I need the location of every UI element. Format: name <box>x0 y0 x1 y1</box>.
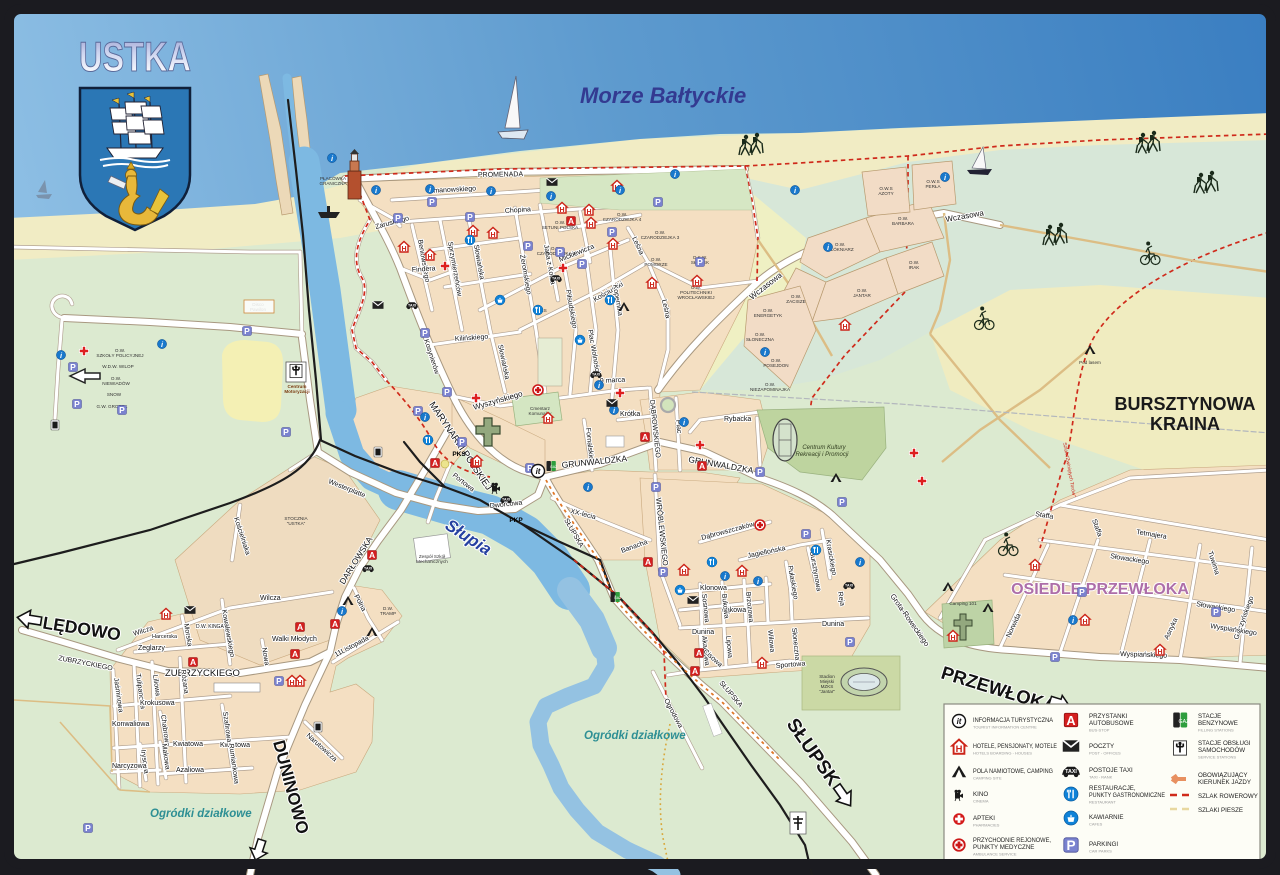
svg-text:ZACISZE: ZACISZE <box>786 299 805 304</box>
svg-text:Wilcza: Wilcza <box>260 595 281 602</box>
svg-text:POST - OFFICES: POST - OFFICES <box>1089 751 1121 756</box>
svg-text:NIEWIADÓW: NIEWIADÓW <box>102 380 130 386</box>
svg-text:WROCŁAWSKIEJ: WROCŁAWSKIEJ <box>677 295 714 300</box>
svg-text:PUNKTY GASTRONOMICZNE: PUNKTY GASTRONOMICZNE <box>1089 792 1165 799</box>
svg-text:Klonowa: Klonowa <box>700 585 727 592</box>
svg-text:POSTOJE TAXI: POSTOJE TAXI <box>1089 767 1133 774</box>
svg-text:KAWIARNIE: KAWIARNIE <box>1089 814 1124 821</box>
svg-text:CAR PARKS: CAR PARKS <box>1089 849 1112 854</box>
svg-text:SZKOŁY POLICYJNEJ: SZKOŁY POLICYJNEJ <box>96 353 143 358</box>
svg-text:"Jantar": "Jantar" <box>819 689 835 694</box>
svg-text:AMBULANCE SERVICE: AMBULANCE SERVICE <box>973 852 1017 857</box>
svg-text:RESTAURANT: RESTAURANT <box>1089 800 1116 805</box>
svg-text:RESTAURACJE,: RESTAURACJE, <box>1089 785 1136 792</box>
svg-text:Żeglarzy: Żeglarzy <box>138 643 165 652</box>
svg-text:OBOWIĄZUJĄCY: OBOWIĄZUJĄCY <box>1198 772 1248 779</box>
svg-text:PKP: PKP <box>509 517 523 524</box>
svg-text:D.W. KINGA: D.W. KINGA <box>196 624 224 630</box>
svg-text:Dunina: Dunina <box>822 621 844 628</box>
svg-text:PKS: PKS <box>452 451 466 458</box>
svg-text:Motoryzacji: Motoryzacji <box>284 389 309 394</box>
svg-text:OSIEDLE PRZEWŁOKA: OSIEDLE PRZEWŁOKA <box>1011 581 1189 598</box>
svg-text:SERVICE STATIONS: SERVICE STATIONS <box>1198 755 1236 760</box>
svg-text:Mechanicznych: Mechanicznych <box>416 559 448 564</box>
svg-text:USTKA: USTKA <box>79 33 191 80</box>
svg-text:STACJE: STACJE <box>1198 713 1221 720</box>
svg-text:ENERGETYK: ENERGETYK <box>754 313 783 318</box>
svg-text:TOURIST INFORMATION CENTRE: TOURIST INFORMATION CENTRE <box>973 725 1037 730</box>
svg-text:KIERUNEK JAZDY: KIERUNEK JAZDY <box>1198 779 1251 786</box>
svg-text:JANTAR: JANTAR <box>853 293 871 298</box>
svg-text:Krótka: Krótka <box>620 411 640 418</box>
svg-text:SZLAKI PIESZE: SZLAKI PIESZE <box>1198 807 1243 814</box>
svg-text:INFORMACJA TURYSTYCZNA: INFORMACJA TURYSTYCZNA <box>973 717 1054 724</box>
svg-text:Walki Młodych: Walki Młodych <box>272 636 317 643</box>
svg-text:Pod lasem: Pod lasem <box>1079 360 1101 365</box>
svg-text:BENZYNOWE: BENZYNOWE <box>1198 720 1238 727</box>
svg-text:SŁONECZNA: SŁONECZNA <box>746 337 775 342</box>
svg-text:Rybacka: Rybacka <box>724 416 751 423</box>
svg-text:PARKINGI: PARKINGI <box>1089 841 1118 848</box>
svg-text:Rekreacji i Promocji: Rekreacji i Promocji <box>795 452 849 458</box>
svg-text:Centrum Kultury: Centrum Kultury <box>802 445 846 451</box>
svg-text:POMORZE: POMORZE <box>644 262 667 267</box>
svg-text:Azaliowa: Azaliowa <box>176 767 204 774</box>
svg-text:ZUBRZYCKIEGO: ZUBRZYCKIEGO <box>165 668 240 679</box>
svg-text:Konwaliowa: Konwaliowa <box>112 721 149 728</box>
svg-text:SNOW: SNOW <box>107 392 122 397</box>
svg-text:CAFES: CAFES <box>1089 822 1103 827</box>
svg-text:Camping 101: Camping 101 <box>949 601 977 606</box>
svg-text:Kwiatowa: Kwiatowa <box>173 741 203 748</box>
svg-text:PUNKTY MEDYCZNE: PUNKTY MEDYCZNE <box>973 844 1034 851</box>
svg-text:BURSZTYNOWA: BURSZTYNOWA <box>1115 394 1256 414</box>
svg-text:AZOTY: AZOTY <box>878 191 893 196</box>
svg-text:POCZTY: POCZTY <box>1089 743 1114 750</box>
svg-text:HOTELE, PENSJONATY, MOTELE: HOTELE, PENSJONATY, MOTELE <box>973 743 1057 750</box>
svg-text:SAMOCHODÓW: SAMOCHODÓW <box>1198 747 1245 754</box>
svg-text:Harcerska: Harcerska <box>152 634 178 640</box>
svg-text:FILLING STATIONS: FILLING STATIONS <box>1198 728 1234 733</box>
svg-text:PRZYCHODNIE REJONOWE,: PRZYCHODNIE REJONOWE, <box>973 837 1051 844</box>
svg-text:IRAK: IRAK <box>909 265 921 270</box>
svg-text:HOTELS BOARDING - HOUSES: HOTELS BOARDING - HOUSES <box>973 751 1032 756</box>
svg-text:PERŁA: PERŁA <box>925 184 941 189</box>
svg-text:CZARODZIEJKA 4: CZARODZIEJKA 4 <box>603 217 642 222</box>
svg-text:CINEMA: CINEMA <box>973 799 989 804</box>
svg-text:POLA NAMIOTOWE, CAMPING: POLA NAMIOTOWE, CAMPING <box>973 768 1053 775</box>
svg-text:PROMENADA: PROMENADA <box>478 171 524 179</box>
svg-text:SZLAK ROWEROWY: SZLAK ROWEROWY <box>1198 793 1258 800</box>
svg-text:Ogródki działkowe: Ogródki działkowe <box>150 808 252 820</box>
svg-text:CAMPING SITE: CAMPING SITE <box>973 776 1002 781</box>
svg-text:BARBARA: BARBARA <box>892 221 915 226</box>
svg-text:GRANICZNA: GRANICZNA <box>319 181 347 186</box>
svg-text:Narcyzowa: Narcyzowa <box>112 763 147 770</box>
svg-text:PRZYSTANKI: PRZYSTANKI <box>1089 713 1128 720</box>
svg-text:POSEJDON: POSEJDON <box>763 363 788 368</box>
svg-text:APTEKI: APTEKI <box>973 815 995 822</box>
svg-text:TRAMP: TRAMP <box>380 611 396 616</box>
svg-text:PHARMACIES: PHARMACIES <box>973 823 1000 828</box>
svg-text:W.D.W. WILOP: W.D.W. WILOP <box>102 364 133 369</box>
svg-text:KRAINA: KRAINA <box>1150 414 1220 434</box>
svg-text:STACJE OBSŁUGI: STACJE OBSŁUGI <box>1198 740 1251 747</box>
svg-text:NIEZAPOMINAJKA: NIEZAPOMINAJKA <box>750 387 791 392</box>
svg-text:AUTOBUSOWE: AUTOBUSOWE <box>1089 720 1134 727</box>
svg-text:BUS-STOP: BUS-STOP <box>1089 728 1110 733</box>
svg-text:Morze Bałtyckie: Morze Bałtyckie <box>580 83 746 108</box>
svg-text:TAXI - RANK: TAXI - RANK <box>1089 775 1113 780</box>
svg-text:Krokusowa: Krokusowa <box>140 700 175 707</box>
svg-text:KINO: KINO <box>973 791 988 798</box>
svg-text:CZARODZIEJKA 3: CZARODZIEJKA 3 <box>641 235 680 240</box>
svg-text:Ogródki działkowe: Ogródki działkowe <box>584 730 686 742</box>
svg-text:"USTKA": "USTKA" <box>287 521 306 526</box>
